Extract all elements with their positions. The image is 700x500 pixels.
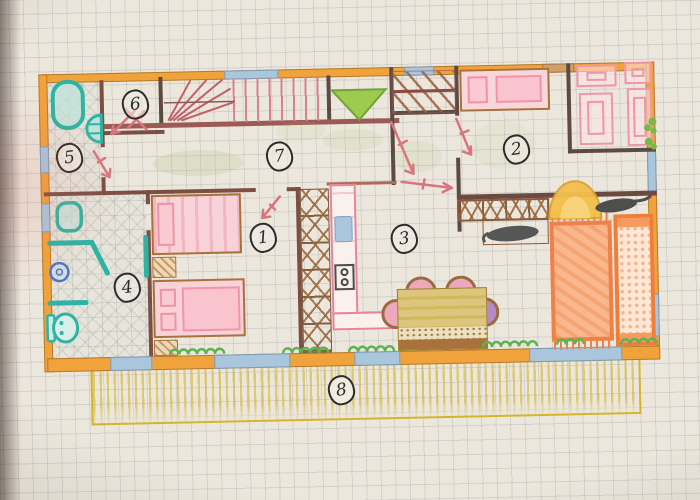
fireplace-dome — [549, 181, 602, 219]
sketch-details — [0, 0, 700, 500]
plant-triangle — [332, 89, 387, 120]
shower-tray-room4 — [57, 203, 82, 231]
bathtub-room5 — [52, 82, 83, 129]
room-number: 2 — [510, 139, 523, 160]
room-number: 4 — [121, 277, 134, 298]
stair-winder-fan — [167, 79, 233, 120]
radiator-squiggles — [170, 338, 657, 356]
room-number: 1 — [257, 227, 270, 248]
floor-smudges — [152, 116, 535, 178]
floorplan-photo: 1 2 3 4 5 6 7 8 — [0, 0, 700, 500]
room-number: 8 — [335, 380, 348, 401]
stair-mid-line — [164, 101, 235, 102]
room-number: 3 — [398, 228, 411, 249]
toilet — [47, 314, 78, 343]
sink-room5 — [87, 115, 102, 142]
washing-machine — [50, 263, 68, 281]
floorplan-drawing: 1 2 3 4 5 6 7 8 — [0, 0, 700, 500]
nook-plants — [644, 118, 657, 150]
cat-2 — [483, 224, 539, 244]
room-number: 6 — [129, 94, 142, 115]
cat-1 — [594, 196, 651, 215]
room-number: 7 — [273, 146, 286, 167]
graph-paper: 1 2 3 4 5 6 7 8 — [0, 0, 700, 500]
room-number: 5 — [63, 147, 76, 168]
